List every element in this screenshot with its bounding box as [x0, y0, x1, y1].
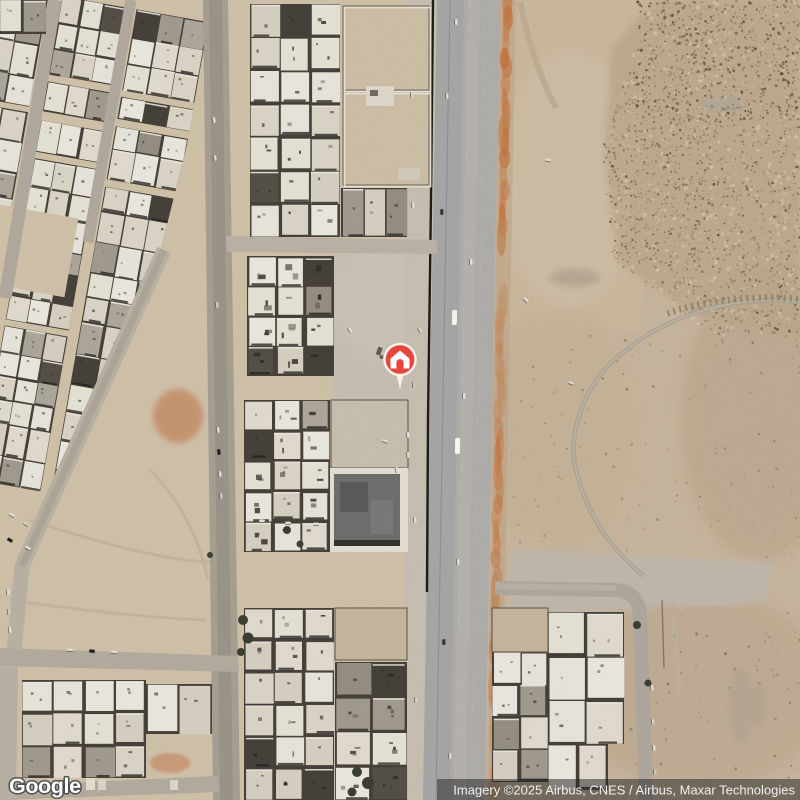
svg-text:Imagery ©2025 Airbus, CNES / A: Imagery ©2025 Airbus, CNES / Airbus, Max… — [453, 783, 795, 798]
svg-text:Google: Google — [9, 774, 81, 798]
